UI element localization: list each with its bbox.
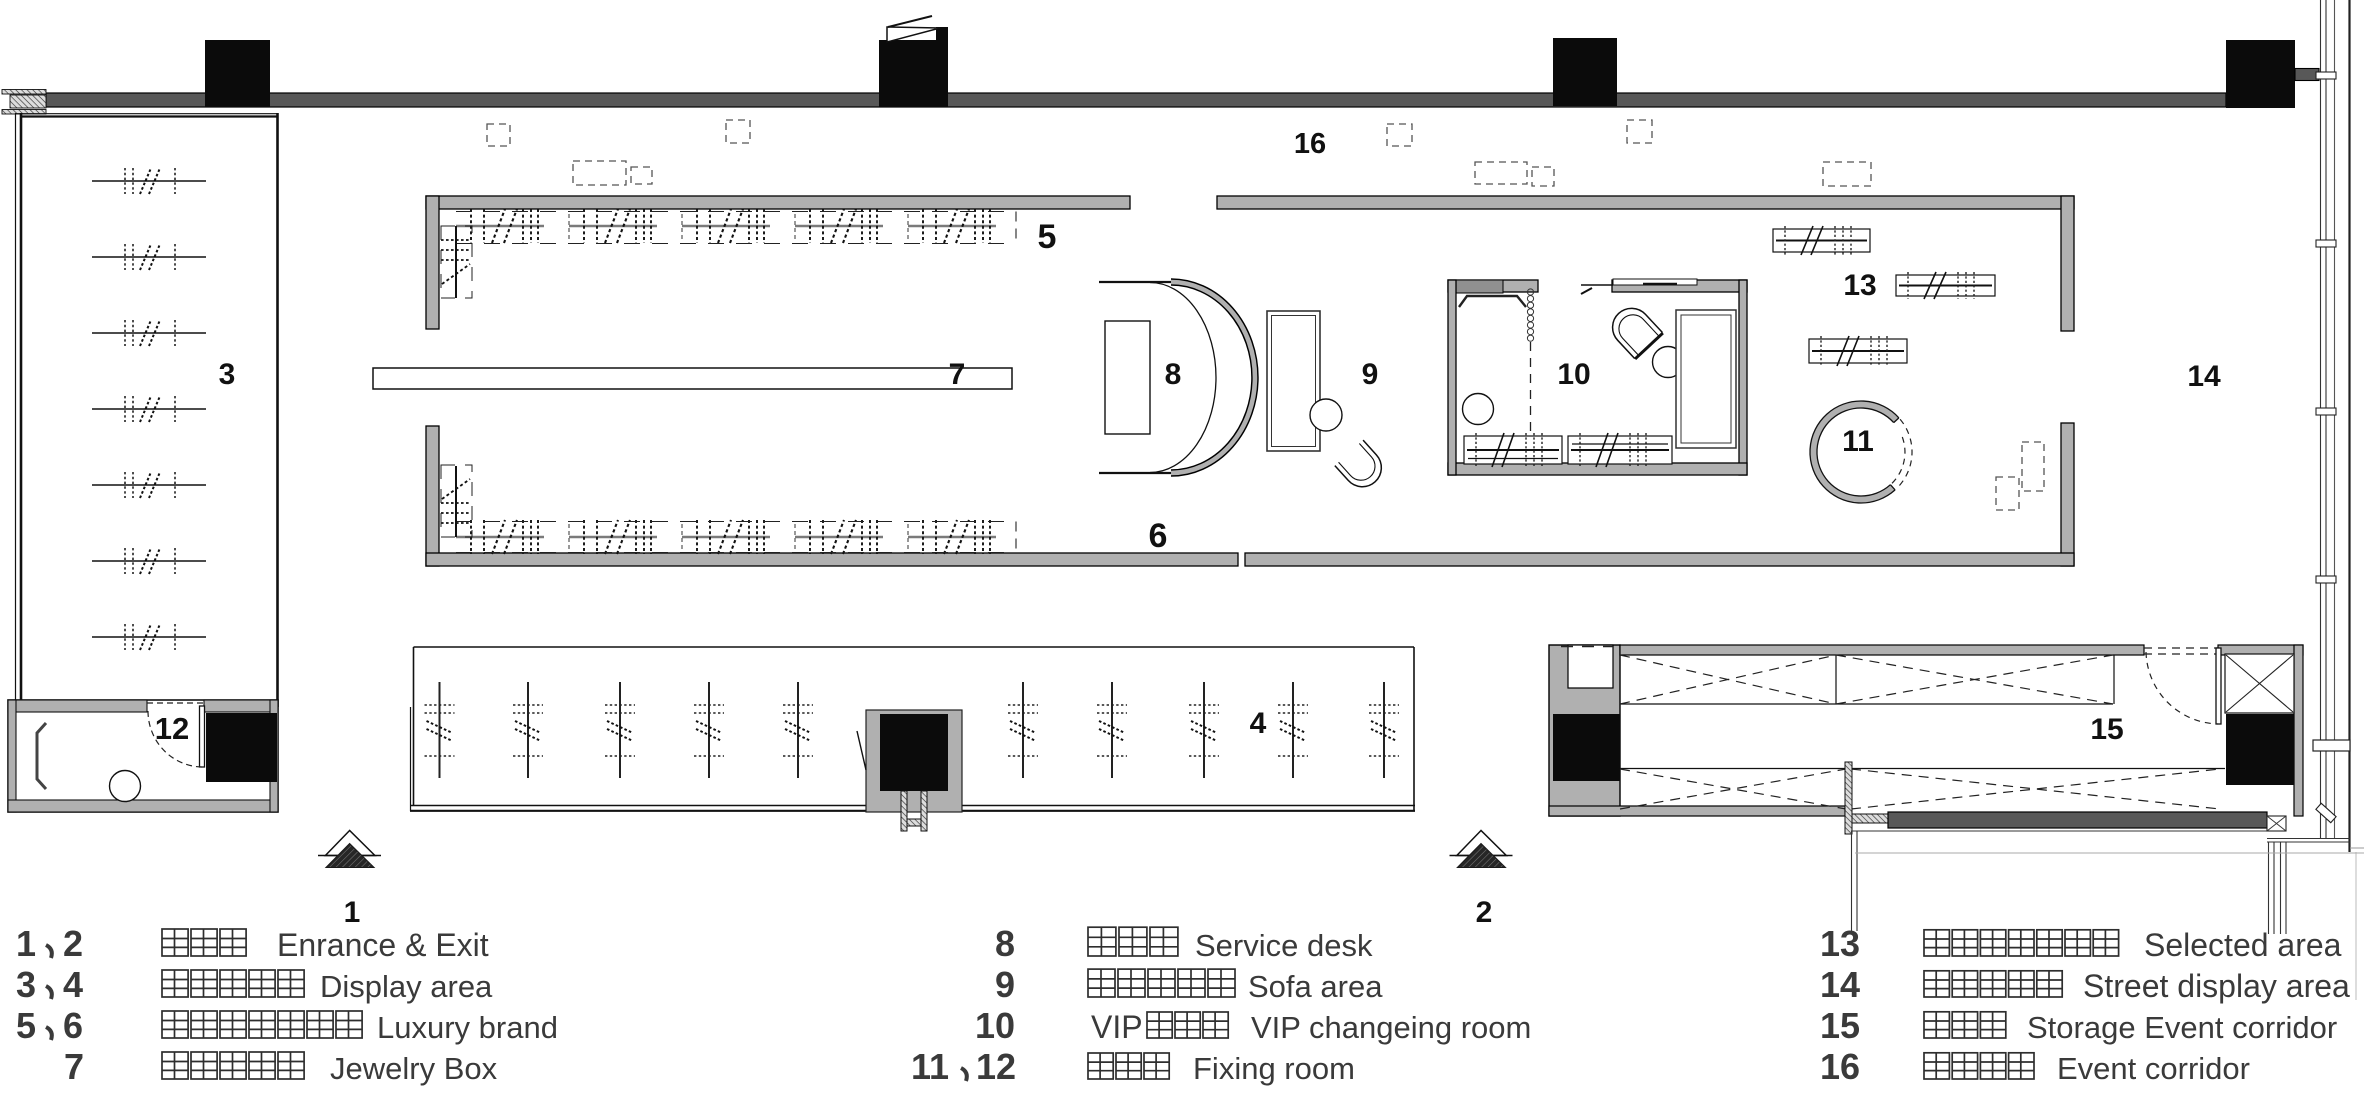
svg-text:8: 8 — [995, 923, 1015, 964]
svg-text:7: 7 — [949, 358, 966, 391]
svg-text:14: 14 — [1820, 964, 1860, 1005]
svg-text:2: 2 — [1476, 896, 1493, 929]
svg-text:Enrance & Exit: Enrance & Exit — [277, 927, 489, 963]
svg-text:Event corridor: Event corridor — [2057, 1051, 2250, 1086]
svg-text:15: 15 — [2090, 713, 2123, 746]
svg-text:4: 4 — [1250, 707, 1267, 740]
svg-text:7: 7 — [64, 1046, 84, 1087]
svg-text:13: 13 — [1843, 269, 1876, 302]
svg-text:9: 9 — [1362, 358, 1379, 391]
svg-text:VIP: VIP — [1091, 1009, 1143, 1045]
svg-text:16: 16 — [1294, 128, 1326, 160]
svg-text:1: 1 — [344, 896, 361, 929]
svg-text:5: 5 — [1038, 218, 1057, 256]
svg-text:12: 12 — [976, 1046, 1016, 1087]
svg-text:Display area: Display area — [320, 969, 493, 1004]
svg-text:15: 15 — [1820, 1005, 1860, 1046]
svg-text:2: 2 — [63, 923, 83, 964]
svg-text:Sofa area: Sofa area — [1248, 969, 1383, 1004]
svg-text:14: 14 — [2187, 360, 2221, 393]
svg-text:4: 4 — [63, 964, 83, 1005]
svg-text:Fixing room: Fixing room — [1193, 1051, 1355, 1086]
svg-text:Service desk: Service desk — [1195, 928, 1373, 963]
svg-text:16: 16 — [1820, 1046, 1860, 1087]
svg-text:3: 3 — [16, 964, 36, 1005]
svg-text:Selected area: Selected area — [2144, 927, 2342, 963]
svg-text:Jewelry Box: Jewelry Box — [330, 1051, 498, 1086]
svg-text:10: 10 — [1557, 358, 1590, 391]
svg-text:11: 11 — [911, 1046, 949, 1087]
svg-text:10: 10 — [975, 1005, 1015, 1046]
svg-text:11: 11 — [1842, 425, 1874, 458]
svg-text:VIP changeing room: VIP changeing room — [1251, 1010, 1531, 1045]
svg-text:9: 9 — [995, 964, 1015, 1005]
svg-text:8: 8 — [1165, 358, 1182, 391]
svg-text:Luxury brand: Luxury brand — [377, 1010, 558, 1045]
svg-text:6: 6 — [63, 1005, 83, 1046]
svg-text:6: 6 — [1149, 517, 1168, 555]
svg-text:Storage Event corridor: Storage Event corridor — [2027, 1010, 2337, 1045]
svg-text:12: 12 — [155, 711, 189, 746]
svg-text:3: 3 — [219, 358, 236, 391]
svg-text:5: 5 — [16, 1005, 36, 1046]
svg-text:1: 1 — [16, 923, 36, 964]
svg-text:Street display area: Street display area — [2083, 968, 2350, 1004]
svg-text:13: 13 — [1820, 923, 1860, 964]
